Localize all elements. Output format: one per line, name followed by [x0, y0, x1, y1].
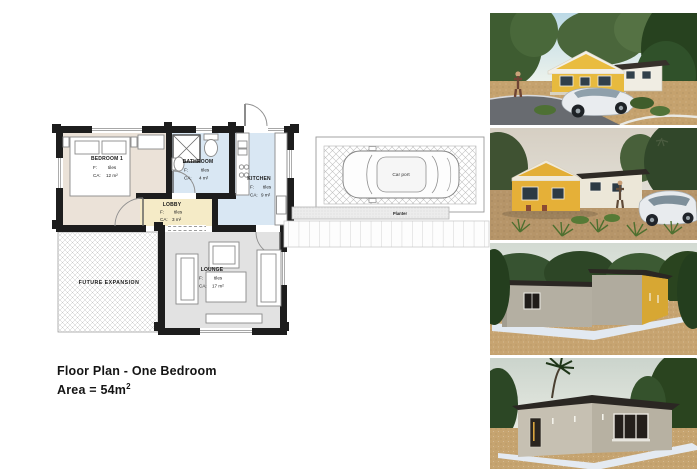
lounge-ca-value: 17 m²	[212, 284, 224, 289]
render-photo-dusk-angle	[490, 128, 697, 240]
lobby-f-label: F:	[160, 210, 164, 215]
plan-title-line1: Floor Plan - One Bedroom	[57, 364, 217, 379]
kitchen-right-window	[287, 150, 294, 178]
render-photo-3-art	[490, 243, 697, 355]
bedroom-left-window	[56, 158, 63, 188]
kitchen-ca-label: CA:	[250, 193, 258, 198]
render-photo-4-art	[490, 358, 697, 469]
kitchen-ca-value: 9 m²	[261, 193, 271, 198]
bedroom-top-window	[92, 126, 142, 133]
bathroom-name: BATHROOM	[183, 159, 214, 165]
lobby-f-value: tiles	[174, 210, 183, 215]
wardrobe	[138, 135, 164, 149]
render-photo-2-art	[490, 128, 697, 240]
bathroom-ca-value: 4 m²	[199, 176, 209, 181]
render-photo-1-art	[490, 13, 697, 125]
planter-label: Planter	[393, 211, 408, 216]
kitchen-top-window	[268, 126, 284, 133]
lounge-ca-label: CA:	[199, 284, 207, 289]
plan-title: Floor Plan - One Bedroom Area = 54m2	[57, 364, 217, 398]
kitchen-f-value: tiles	[263, 185, 272, 190]
page: BEDROOM 1 F: tiles CA: 12 m² BATHROOM F:…	[0, 0, 700, 469]
lobby-ca-label: CA:	[160, 217, 168, 222]
plan-title-line2: Area = 54m2	[57, 379, 217, 398]
render-photo-model-rear	[490, 243, 697, 355]
render-photo-front-day	[490, 13, 697, 125]
lounge-f-value: tiles	[214, 276, 223, 281]
bedroom-ca-label: CA:	[93, 173, 101, 178]
bedroom-f-label: F:	[93, 165, 97, 170]
paving	[284, 221, 489, 247]
lounge-f-label: F:	[199, 276, 203, 281]
kitchen-exterior-door	[244, 104, 268, 133]
bedroom-ca-value: 12 m²	[106, 173, 118, 178]
lobby-ca-value: 3 m²	[172, 217, 182, 222]
bathroom-ca-label: CA:	[184, 176, 192, 181]
bathroom-f-label: F:	[184, 168, 188, 173]
planter-strip	[292, 207, 449, 219]
bedroom-name: BEDROOM 1	[91, 156, 123, 162]
bathroom-top-window	[196, 126, 212, 133]
plan-area-sup: 2	[126, 382, 131, 391]
plan-area-text: Area = 54m	[57, 383, 126, 397]
bathroom-f-value: tiles	[201, 168, 210, 173]
bedroom-f-value: tiles	[108, 165, 117, 170]
kitchen-name: KITCHEN	[247, 176, 271, 182]
lounge-name: LOUNGE	[201, 267, 224, 273]
render-photo-model-corner	[490, 358, 697, 469]
lobby-opening-dashed	[168, 225, 206, 232]
future-expansion-name: FUTURE EXPANSION	[79, 280, 140, 286]
toilet	[204, 134, 218, 157]
lobby-name: LOBBY	[163, 202, 182, 208]
car-white-sedan-2	[639, 191, 697, 226]
kitchen-f-label: F:	[250, 185, 254, 190]
lounge-bottom-window	[200, 328, 252, 335]
carport-label: Car port	[392, 172, 410, 178]
